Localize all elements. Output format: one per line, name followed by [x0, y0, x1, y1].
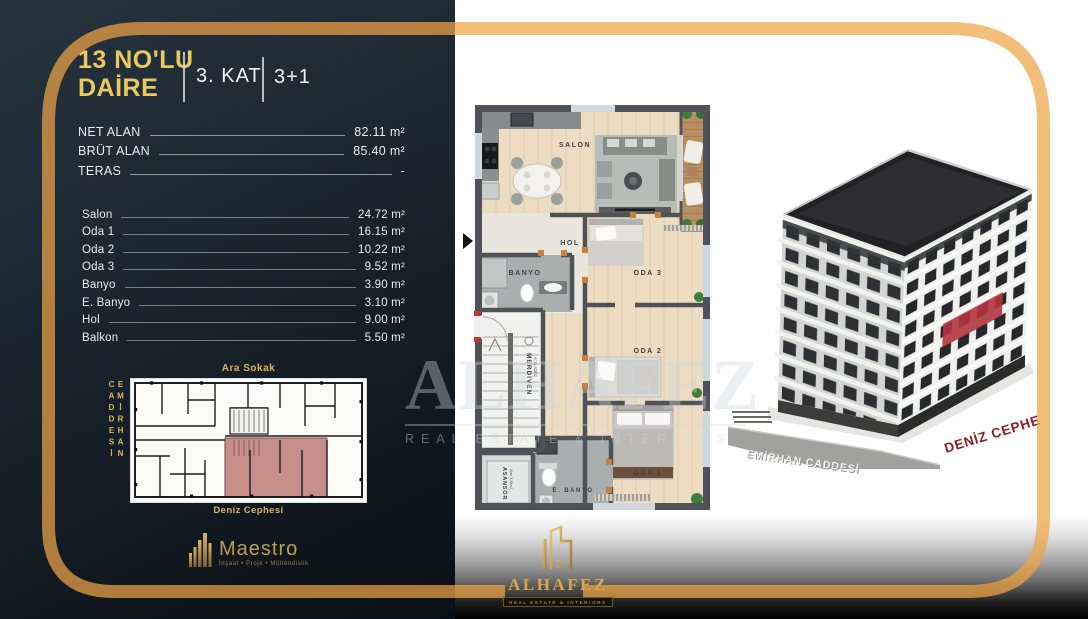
leader-line: [123, 234, 349, 235]
room-label-banyo: BANYO: [509, 270, 542, 277]
table-row: Oda 1 16.15 m²: [82, 221, 405, 239]
sea-facade-label: DENİZ CEPHESİ: [942, 408, 1040, 456]
maestro-wordmark: Maestro: [219, 539, 309, 559]
apartment-floor-plan: SALON HOL BANYO ODA 3 ODA 2 ODA 1 E. BAN…: [461, 105, 715, 515]
room-value: 3.10 m²: [365, 297, 405, 309]
table-row: E. Banyo 3.10 m²: [82, 291, 405, 309]
room-label-oda1: ODA 1: [634, 470, 663, 477]
svg-text:z: z: [556, 553, 564, 572]
area-value: 85.40 m²: [353, 144, 405, 158]
room-label-merdiven: MERDİVEN: [525, 353, 533, 395]
highlighted-unit: [225, 438, 327, 497]
room-value: 24.72 m²: [358, 209, 405, 221]
plan-type-label: 3+1: [274, 66, 311, 89]
room-label: Oda 3: [82, 261, 114, 273]
table-row: TERAS -: [78, 158, 405, 178]
sea-facade-label-mini: Deniz Cephesi: [130, 505, 367, 516]
brochure-page: 13 NO'LU DAİRE 3. KAT 3+1 NET ALAN 82.11…: [0, 0, 1088, 619]
room-label: Hol: [82, 314, 100, 326]
building-3d-render: EMİRHAN CADDESİ EMİRHAN CADDESİ DENİZ CE…: [728, 135, 1040, 497]
room-label-asansor: ASANSÖR: [501, 467, 508, 500]
header-divider: [262, 57, 264, 102]
table-row: Oda 2 10.22 m²: [82, 238, 405, 256]
alhafez-building-icon: z: [537, 523, 579, 573]
room-value: 9.00 m²: [365, 314, 405, 326]
table-row: Salon 24.72 m²: [82, 203, 405, 221]
room-value: 3.90 m²: [365, 279, 405, 291]
room-label: Salon: [82, 209, 112, 221]
room-label: Oda 2: [82, 244, 114, 256]
leader-line: [123, 269, 355, 270]
asansor-area-label: Alan 3.38m2: [509, 469, 513, 489]
apartment-title: 13 NO'LU DAİRE: [78, 46, 194, 102]
maestro-building-icon: [188, 531, 214, 567]
table-row: Hol 9.00 m²: [82, 309, 405, 327]
table-row: NET ALAN 82.11 m²: [78, 119, 405, 139]
room-label-oda3: ODA 3: [634, 270, 663, 277]
area-label: TERAS: [78, 164, 121, 178]
room-label-oda2: ODA 2: [634, 348, 663, 355]
table-row: Balkon 5.50 m²: [82, 326, 405, 344]
alhafez-wordmark: ALHAFEZ: [508, 575, 608, 595]
alhafez-tagline: REAL ESTATE & INTERIORS: [503, 597, 613, 607]
area-label: NET ALAN: [78, 125, 141, 139]
leader-line: [139, 305, 355, 306]
room-value: 10.22 m²: [358, 244, 405, 256]
maestro-logo: Maestro İnşaat • Proje • Mühendislik: [188, 531, 328, 567]
merdiven-area-label: A:11.40m2: [533, 357, 538, 378]
leader-line: [121, 217, 349, 218]
room-label: Banyo: [82, 279, 116, 291]
room-area-table: Salon 24.72 m² Oda 1 16.15 m² Oda 2 10.2…: [82, 203, 405, 344]
leader-line: [150, 135, 346, 136]
leader-line: [123, 252, 349, 253]
floor-label: 3. KAT: [196, 65, 262, 88]
room-value: 16.15 m²: [358, 226, 405, 238]
area-value: 82.11 m²: [354, 125, 405, 139]
apartment-title-line1: 13 NO'LU: [78, 46, 194, 74]
room-value: 5.50 m²: [365, 332, 405, 344]
street-label-left: EMİRHAN CADDESİ: [107, 380, 125, 502]
header-divider: [183, 52, 185, 102]
leader-line: [125, 287, 356, 288]
room-label: Oda 1: [82, 226, 114, 238]
leader-line: [159, 154, 344, 155]
maestro-tagline: İnşaat • Proje • Mühendislik: [219, 561, 309, 567]
area-label: BRÜT ALAN: [78, 144, 150, 158]
room-label: E. Banyo: [82, 297, 130, 309]
leader-line: [109, 322, 356, 323]
leader-line: [130, 174, 391, 175]
apartment-title-line2: DAİRE: [78, 74, 194, 102]
room-label: Balkon: [82, 332, 118, 344]
room-label-hol: HOL: [560, 240, 579, 247]
alhafez-logo: z ALHAFEZ REAL ESTATE & INTERIORS: [496, 523, 620, 607]
area-value: -: [401, 164, 405, 178]
leader-line: [127, 340, 355, 341]
room-value: 9.52 m²: [365, 261, 405, 273]
table-row: BRÜT ALAN 85.40 m²: [78, 139, 405, 159]
site-plan-thumbnail: [130, 378, 367, 503]
street-label-top: Ara Sokak: [130, 363, 367, 374]
room-label-salon: SALON: [559, 142, 591, 149]
room-label-ebanyo: E. BANYO: [552, 488, 593, 494]
entry-arrow: [463, 233, 473, 249]
area-summary-table: NET ALAN 82.11 m² BRÜT ALAN 85.40 m² TER…: [78, 119, 405, 178]
table-row: Banyo 3.90 m²: [82, 273, 405, 291]
table-row: Oda 3 9.52 m²: [82, 256, 405, 274]
